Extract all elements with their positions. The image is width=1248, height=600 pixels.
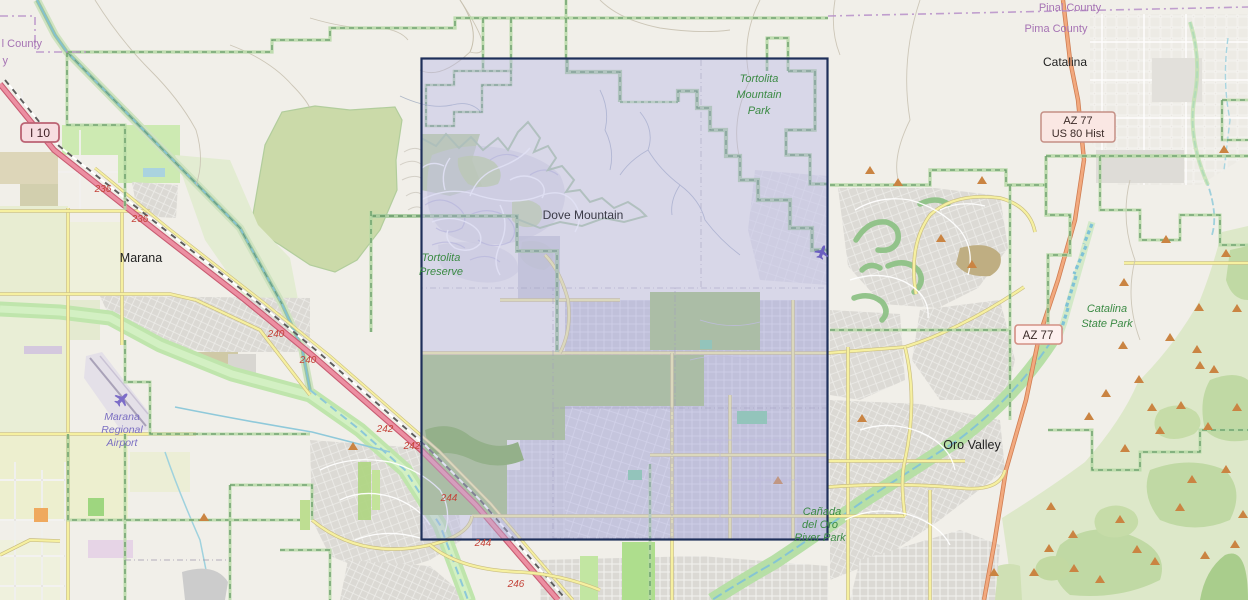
svg-text:US 80 Hist: US 80 Hist — [1052, 128, 1105, 140]
svg-text:I 10: I 10 — [30, 126, 50, 140]
svg-text:l County: l County — [2, 38, 43, 50]
svg-text:Regional: Regional — [101, 424, 143, 436]
svg-text:Oro Valley: Oro Valley — [943, 438, 1001, 452]
svg-text:Park: Park — [748, 105, 771, 117]
svg-text:244: 244 — [440, 493, 458, 504]
svg-text:y: y — [3, 55, 9, 67]
svg-text:Catalina: Catalina — [1043, 55, 1087, 69]
svg-text:244: 244 — [474, 538, 492, 549]
svg-text:Catalina: Catalina — [1087, 303, 1127, 315]
svg-text:Tortolita: Tortolita — [740, 73, 779, 85]
svg-text:Marana: Marana — [120, 251, 162, 265]
svg-text:Preserve: Preserve — [419, 266, 463, 278]
svg-text:242: 242 — [403, 441, 421, 452]
svg-text:Cañada: Cañada — [803, 506, 842, 518]
svg-text:State Park: State Park — [1081, 318, 1133, 330]
svg-text:236: 236 — [94, 184, 112, 195]
svg-text:Pima County: Pima County — [1025, 23, 1088, 35]
svg-text:Airport: Airport — [106, 437, 139, 449]
svg-text:Mountain: Mountain — [736, 89, 781, 101]
svg-text:240: 240 — [299, 355, 317, 366]
svg-text:242: 242 — [376, 424, 394, 435]
svg-text:Pinal County: Pinal County — [1039, 2, 1102, 14]
svg-text:AZ 77: AZ 77 — [1063, 115, 1092, 127]
svg-text:240: 240 — [267, 329, 285, 340]
svg-text:del Oro: del Oro — [802, 519, 838, 531]
svg-text:Dove Mountain: Dove Mountain — [543, 208, 624, 222]
svg-text:River Park: River Park — [794, 532, 846, 544]
svg-text:236: 236 — [131, 214, 149, 225]
svg-text:Tortolita: Tortolita — [422, 252, 461, 264]
svg-text:AZ 77: AZ 77 — [1023, 330, 1054, 342]
svg-text:Marana: Marana — [104, 411, 140, 423]
svg-text:246: 246 — [507, 579, 525, 590]
